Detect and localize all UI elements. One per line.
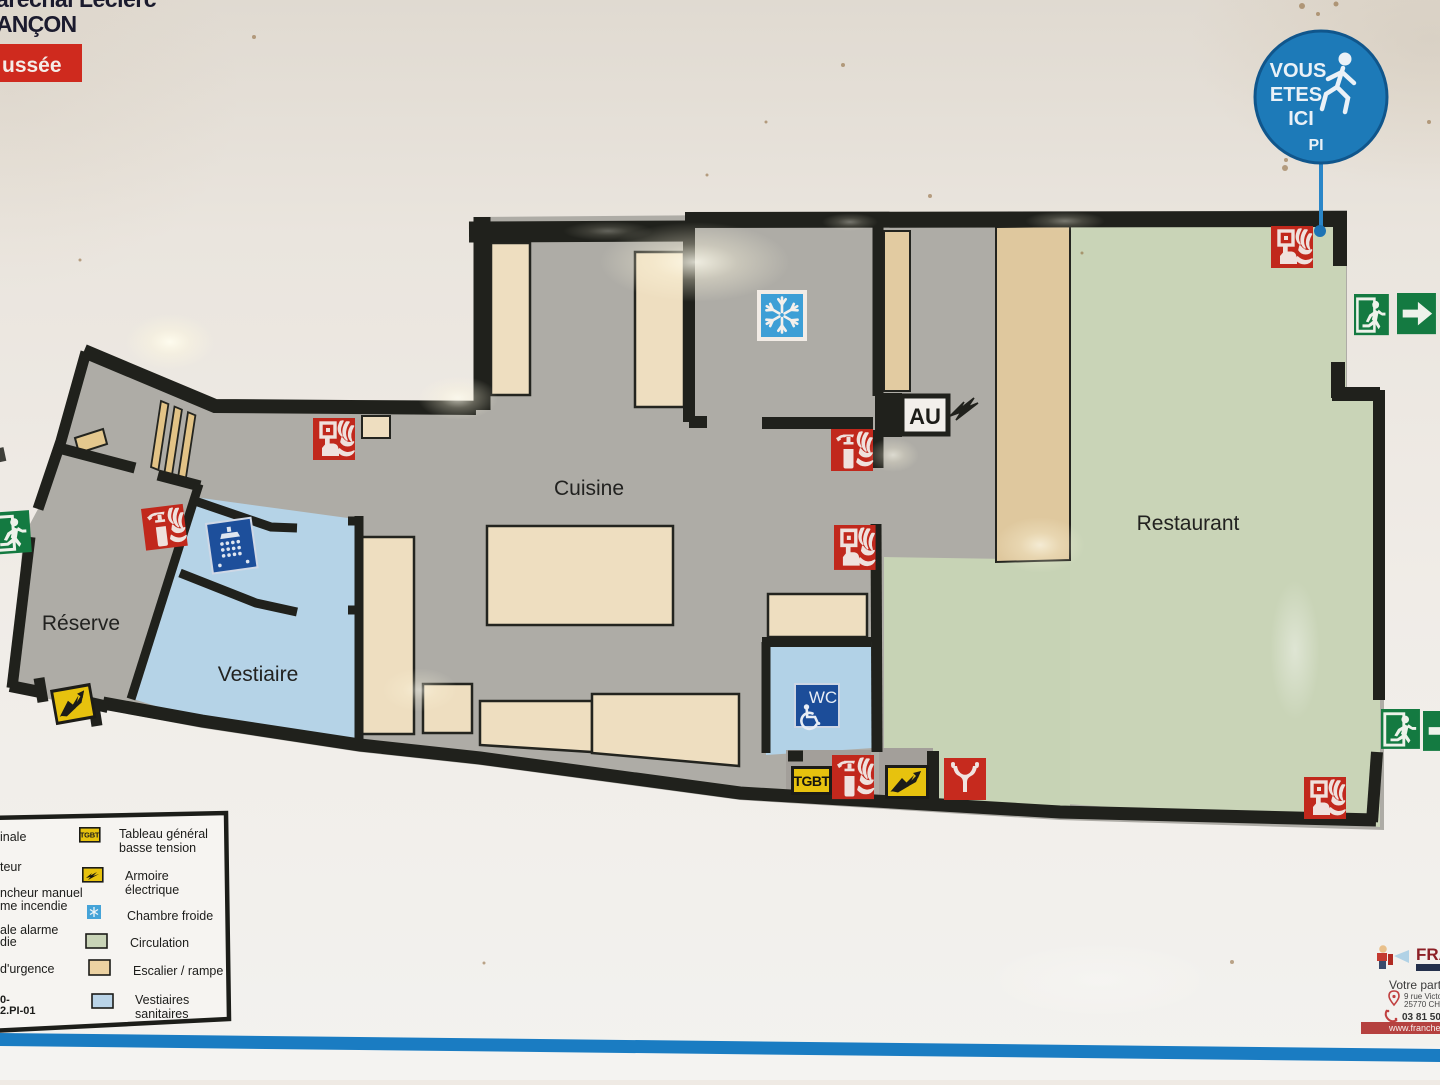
svg-text:Restaurant: Restaurant: [1137, 512, 1240, 535]
svg-text:Vestiaire: Vestiaire: [218, 663, 299, 686]
svg-text:Vestiaires: Vestiaires: [135, 993, 189, 1007]
svg-text:25770 CHEMA: 25770 CHEMA: [1404, 1000, 1440, 1009]
svg-text:sanitaires: sanitaires: [135, 1007, 189, 1021]
svg-text:Cuisine: Cuisine: [554, 477, 624, 500]
svg-text:PI: PI: [1308, 137, 1323, 154]
svg-text:VOUS: VOUS: [1270, 60, 1327, 82]
svg-text:Chambre froide: Chambre froide: [127, 909, 213, 923]
svg-text:TGBT: TGBT: [80, 831, 100, 840]
svg-text:ANÇON: ANÇON: [0, 11, 77, 37]
svg-text:TGBT: TGBT: [793, 773, 830, 789]
svg-text:ussée: ussée: [2, 54, 62, 77]
svg-text:Tableau général: Tableau général: [119, 827, 208, 841]
svg-text:ICI: ICI: [1288, 108, 1314, 130]
svg-text:électrique: électrique: [125, 883, 179, 897]
svg-text:ETES: ETES: [1270, 84, 1322, 106]
svg-text:me incendie: me incendie: [0, 899, 67, 913]
svg-text:FRA: FRA: [1416, 945, 1440, 964]
svg-text:Escalier / rampe: Escalier / rampe: [133, 964, 223, 978]
svg-text:teur: teur: [0, 860, 22, 874]
svg-text:AU: AU: [909, 404, 941, 429]
svg-text:basse tension: basse tension: [119, 841, 196, 855]
svg-text:Votre parten: Votre parten: [1389, 978, 1440, 992]
svg-text:www.franche-co: www.franche-co: [1388, 1023, 1440, 1033]
svg-text:ncheur manuel: ncheur manuel: [0, 886, 83, 900]
svg-text:Armoire: Armoire: [125, 869, 169, 883]
svg-text:inale: inale: [0, 830, 26, 844]
svg-text:Réserve: Réserve: [42, 612, 120, 635]
svg-text:d'urgence: d'urgence: [0, 962, 55, 976]
svg-text:03 81 50 12: 03 81 50 12: [1402, 1012, 1440, 1023]
svg-text:die: die: [0, 935, 17, 949]
svg-text:2.PI-01: 2.PI-01: [0, 1005, 35, 1017]
svg-text:Circulation: Circulation: [130, 936, 189, 950]
